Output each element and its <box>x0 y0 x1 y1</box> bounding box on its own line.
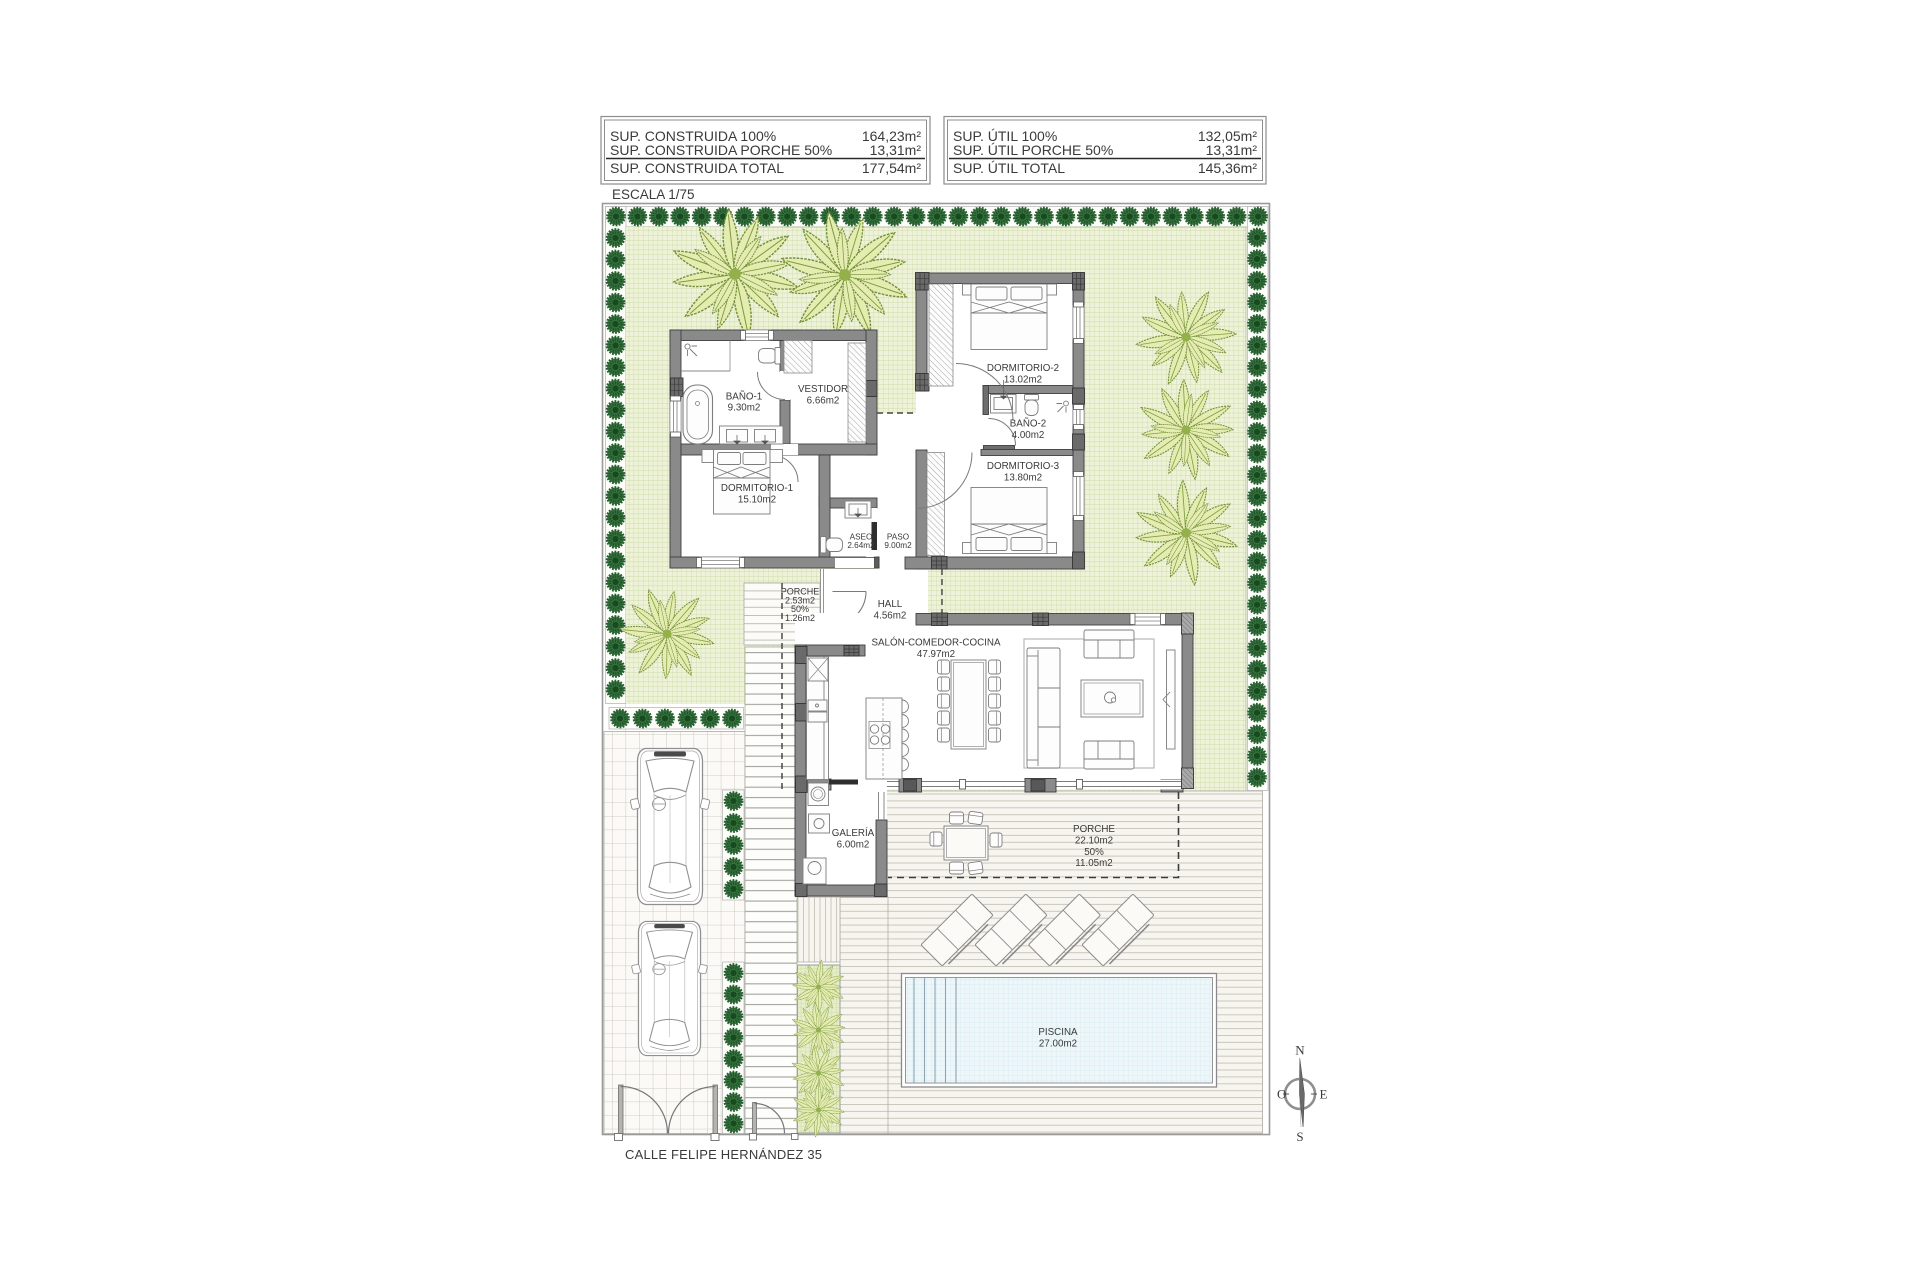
svg-text:4.00m2: 4.00m2 <box>1012 430 1045 441</box>
svg-text:SUP. ÚTIL PORCHE 50%: SUP. ÚTIL PORCHE 50% <box>953 142 1113 158</box>
svg-text:4.56m2: 4.56m2 <box>874 611 907 622</box>
svg-text:HALL: HALL <box>878 599 903 610</box>
svg-text:6.00m2: 6.00m2 <box>837 840 870 851</box>
svg-text:13.80m2: 13.80m2 <box>1004 473 1042 484</box>
svg-text:SUP. CONSTRUIDA TOTAL: SUP. CONSTRUIDA TOTAL <box>610 160 784 176</box>
svg-text:177,54m²: 177,54m² <box>862 160 921 176</box>
svg-text:DORMITORIO-1: DORMITORIO-1 <box>721 483 793 494</box>
svg-text:PISCINA: PISCINA <box>1038 1027 1078 1038</box>
svg-text:SUP. CONSTRUIDA PORCHE 50%: SUP. CONSTRUIDA PORCHE 50% <box>610 142 832 158</box>
svg-text:SUP. ÚTIL TOTAL: SUP. ÚTIL TOTAL <box>953 160 1065 176</box>
svg-text:BAÑO-2: BAÑO-2 <box>1010 419 1046 430</box>
svg-text:1.26m2: 1.26m2 <box>785 613 815 623</box>
svg-text:N: N <box>1295 1043 1305 1058</box>
svg-text:13.02m2: 13.02m2 <box>1004 375 1042 386</box>
svg-text:11.05m2: 11.05m2 <box>1075 858 1112 869</box>
svg-text:27.00m2: 27.00m2 <box>1039 1038 1077 1049</box>
svg-text:50%: 50% <box>1084 847 1104 858</box>
svg-text:PORCHE: PORCHE <box>1073 824 1115 835</box>
svg-text:E: E <box>1320 1087 1328 1102</box>
svg-text:SALÓN-COMEDOR-COCINA: SALÓN-COMEDOR-COCINA <box>871 638 1000 649</box>
svg-text:13,31m²: 13,31m² <box>870 142 922 158</box>
svg-text:47.97m2: 47.97m2 <box>917 649 955 660</box>
svg-text:ESCALA 1/75: ESCALA 1/75 <box>612 187 695 202</box>
svg-text:9.30m2: 9.30m2 <box>728 403 761 414</box>
svg-text:VESTIDOR: VESTIDOR <box>798 384 848 395</box>
svg-text:S: S <box>1296 1129 1303 1144</box>
svg-text:GALERÍA: GALERÍA <box>832 828 875 839</box>
svg-text:145,36m²: 145,36m² <box>1198 160 1257 176</box>
svg-text:6.66m2: 6.66m2 <box>807 396 840 407</box>
svg-text:22.10m2: 22.10m2 <box>1075 835 1113 846</box>
svg-text:BAÑO-1: BAÑO-1 <box>726 392 762 403</box>
svg-text:9.00m2: 9.00m2 <box>884 541 912 550</box>
svg-text:13,31m²: 13,31m² <box>1206 142 1258 158</box>
svg-text:DORMITORIO-2: DORMITORIO-2 <box>987 363 1059 374</box>
svg-text:CALLE FELIPE HERNÁNDEZ 35: CALLE FELIPE HERNÁNDEZ 35 <box>625 1147 822 1162</box>
svg-text:15.10m2: 15.10m2 <box>738 495 776 506</box>
svg-text:O: O <box>1277 1087 1286 1102</box>
svg-text:DORMITORIO-3: DORMITORIO-3 <box>987 461 1060 472</box>
svg-text:2.64m2: 2.64m2 <box>847 541 875 550</box>
